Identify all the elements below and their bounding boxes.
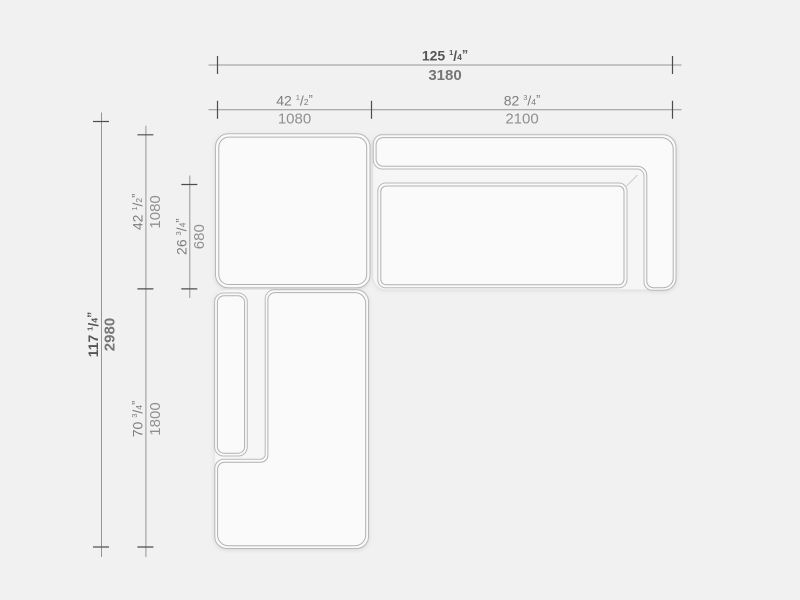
svg-text:1800: 1800 [147, 402, 164, 435]
svg-text:125 1/4”: 125 1/4” [422, 47, 468, 63]
svg-text:1080: 1080 [278, 111, 311, 128]
svg-text:1080: 1080 [147, 195, 164, 228]
svg-text:2980: 2980 [101, 318, 118, 351]
svg-text:117 1/4”: 117 1/4” [85, 312, 101, 358]
svg-text:680: 680 [191, 224, 208, 249]
svg-text:2100: 2100 [505, 111, 538, 128]
svg-text:3180: 3180 [428, 67, 461, 84]
